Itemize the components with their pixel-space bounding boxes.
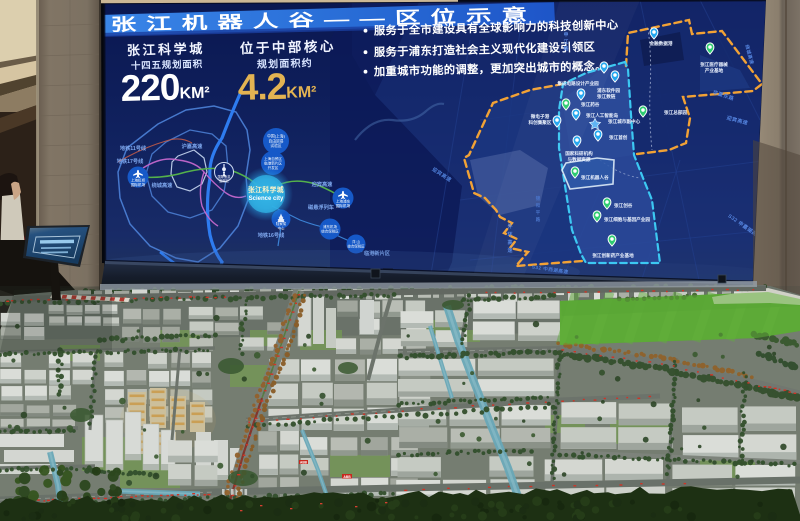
- svg-text:地铁11号线: 地铁11号线: [120, 144, 147, 152]
- svg-text:上海虹桥: 上海虹桥: [131, 177, 146, 182]
- svg-text:临港新片区: 临港新片区: [264, 160, 282, 165]
- svg-text:上海浦东: 上海浦东: [336, 198, 351, 203]
- svg-text:ABB: ABB: [343, 475, 351, 479]
- svg-text:国际机场: 国际机场: [336, 203, 351, 208]
- svg-text:张江总部园: 张江总部园: [664, 109, 687, 116]
- svg-text:迎宾高速: 迎宾高速: [312, 180, 334, 188]
- svg-text:地铁17号线: 地铁17号线: [117, 157, 144, 165]
- svg-text:沪嘉高速: 沪嘉高速: [182, 142, 204, 150]
- svg-text:绕城高速: 绕城高速: [152, 181, 174, 189]
- svg-text:张江创新药产业基地: 张江创新药产业基地: [592, 252, 634, 259]
- svg-text:ABB: ABB: [300, 460, 308, 464]
- svg-text:磁悬浮列车: 磁悬浮列车: [308, 203, 334, 211]
- svg-text:张江科学城: 张江科学城: [248, 185, 284, 194]
- svg-text:地铁16号线: 地铁16号线: [258, 231, 285, 239]
- svg-text:综合保税区: 综合保税区: [348, 243, 366, 248]
- svg-text:中心: 中心: [278, 225, 285, 230]
- svg-text:浦东机场: 浦东机场: [323, 224, 337, 229]
- svg-text:张江创谷: 张江创谷: [614, 202, 633, 209]
- svg-text:国际机场: 国际机场: [131, 182, 146, 187]
- svg-text:张江细胞与基因产业园: 张江细胞与基因产业园: [604, 216, 650, 223]
- svg-text:张江城市副中心: 张江城市副中心: [608, 118, 641, 125]
- svg-text:张江首创: 张江首创: [609, 134, 628, 141]
- svg-text:张江科学城: 张江科学城: [127, 41, 205, 58]
- svg-text:位于中部核心: 位于中部核心: [240, 38, 336, 57]
- svg-text:综合保税区: 综合保税区: [321, 228, 339, 233]
- svg-text:Science city: Science city: [249, 196, 284, 202]
- svg-text:陆家嘴: 陆家嘴: [276, 221, 287, 226]
- svg-text:自由贸易: 自由贸易: [268, 138, 283, 143]
- svg-text:张江医疗器械: 张江医疗器械: [700, 61, 728, 68]
- svg-text:洋 山: 洋 山: [352, 239, 360, 244]
- svg-text:试验区: 试验区: [270, 143, 282, 148]
- svg-text:金融数据港: 金融数据港: [649, 40, 673, 47]
- svg-text:产业基地: 产业基地: [705, 67, 724, 74]
- svg-text:张江机器人谷: 张江机器人谷: [581, 174, 609, 181]
- svg-text:度假区: 度假区: [219, 178, 229, 183]
- svg-text:上海自贸区: 上海自贸区: [264, 156, 282, 161]
- svg-text:中国(上海): 中国(上海): [267, 134, 285, 139]
